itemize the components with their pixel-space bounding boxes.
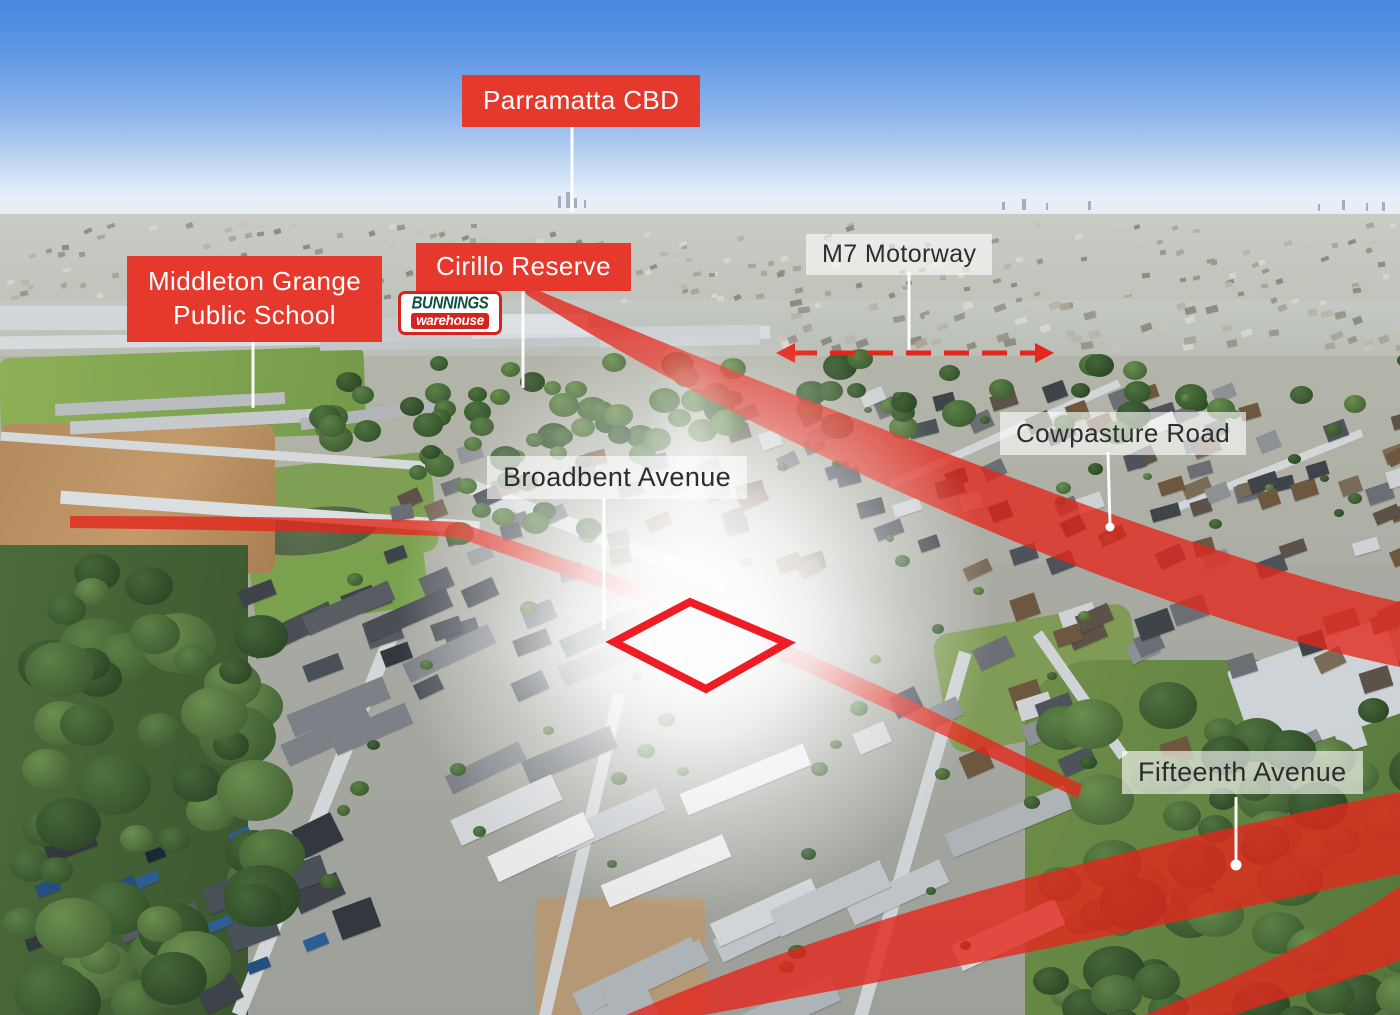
bunnings-warehouse-text: warehouse: [411, 313, 489, 329]
label-cowpasture-road: Cowpasture Road: [1000, 412, 1246, 455]
label-cirillo-reserve: Cirillo Reserve: [416, 243, 631, 291]
label-broadbent-avenue: Broadbent Avenue: [487, 456, 747, 499]
property-glow: [0, 0, 1400, 1015]
aerial-location-photo: Parramatta CBD Middleton Grange Public S…: [0, 0, 1400, 1015]
label-middleton-line2: Public School: [148, 299, 361, 333]
label-parramatta-cbd: Parramatta CBD: [462, 75, 700, 127]
label-fifteenth-avenue: Fifteenth Avenue: [1122, 751, 1363, 794]
bunnings-logo-text: BUNNINGS: [412, 295, 489, 313]
label-middleton-line1: Middleton Grange: [148, 265, 361, 299]
label-middleton-grange-public-school: Middleton Grange Public School: [127, 256, 382, 342]
label-m7-motorway: M7 Motorway: [806, 234, 992, 275]
bunnings-warehouse-logo: BUNNINGS warehouse: [398, 291, 502, 335]
